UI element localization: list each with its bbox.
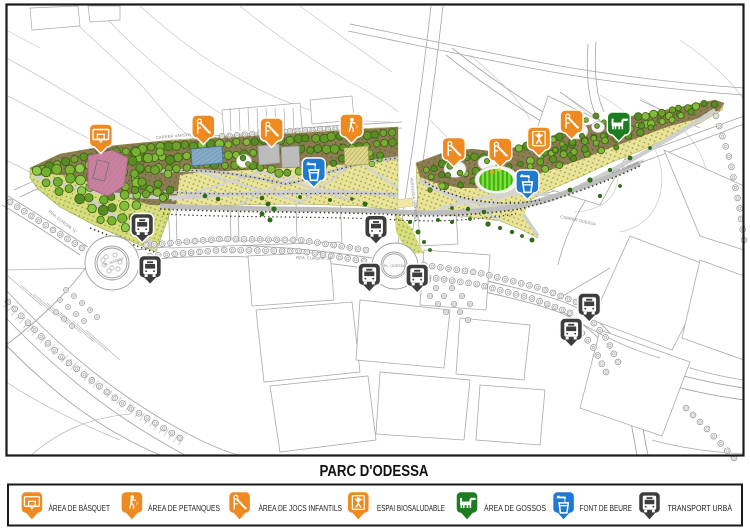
svg-text:PL. ODESSA: PL. ODESSA: [384, 264, 406, 268]
svg-text:ÀREA DE PETANQUES: ÀREA DE PETANQUES: [148, 504, 220, 513]
svg-text:TRANSPORT URBÀ: TRANSPORT URBÀ: [668, 504, 733, 513]
svg-text:FONT DE BEURE: FONT DE BEURE: [580, 504, 633, 513]
svg-text:ESPAI BIOSALUDABLE: ESPAI BIOSALUDABLE: [377, 504, 445, 513]
svg-text:ÀREA DE GOSSOS: ÀREA DE GOSSOS: [484, 504, 546, 513]
svg-text:PARC D'ODESSA: PARC D'ODESSA: [320, 463, 429, 480]
svg-text:ÀREA DE BÀSQUET: ÀREA DE BÀSQUET: [49, 504, 111, 513]
svg-text:ÀREA DE JOCS INFANTILS: ÀREA DE JOCS INFANTILS: [259, 504, 343, 513]
